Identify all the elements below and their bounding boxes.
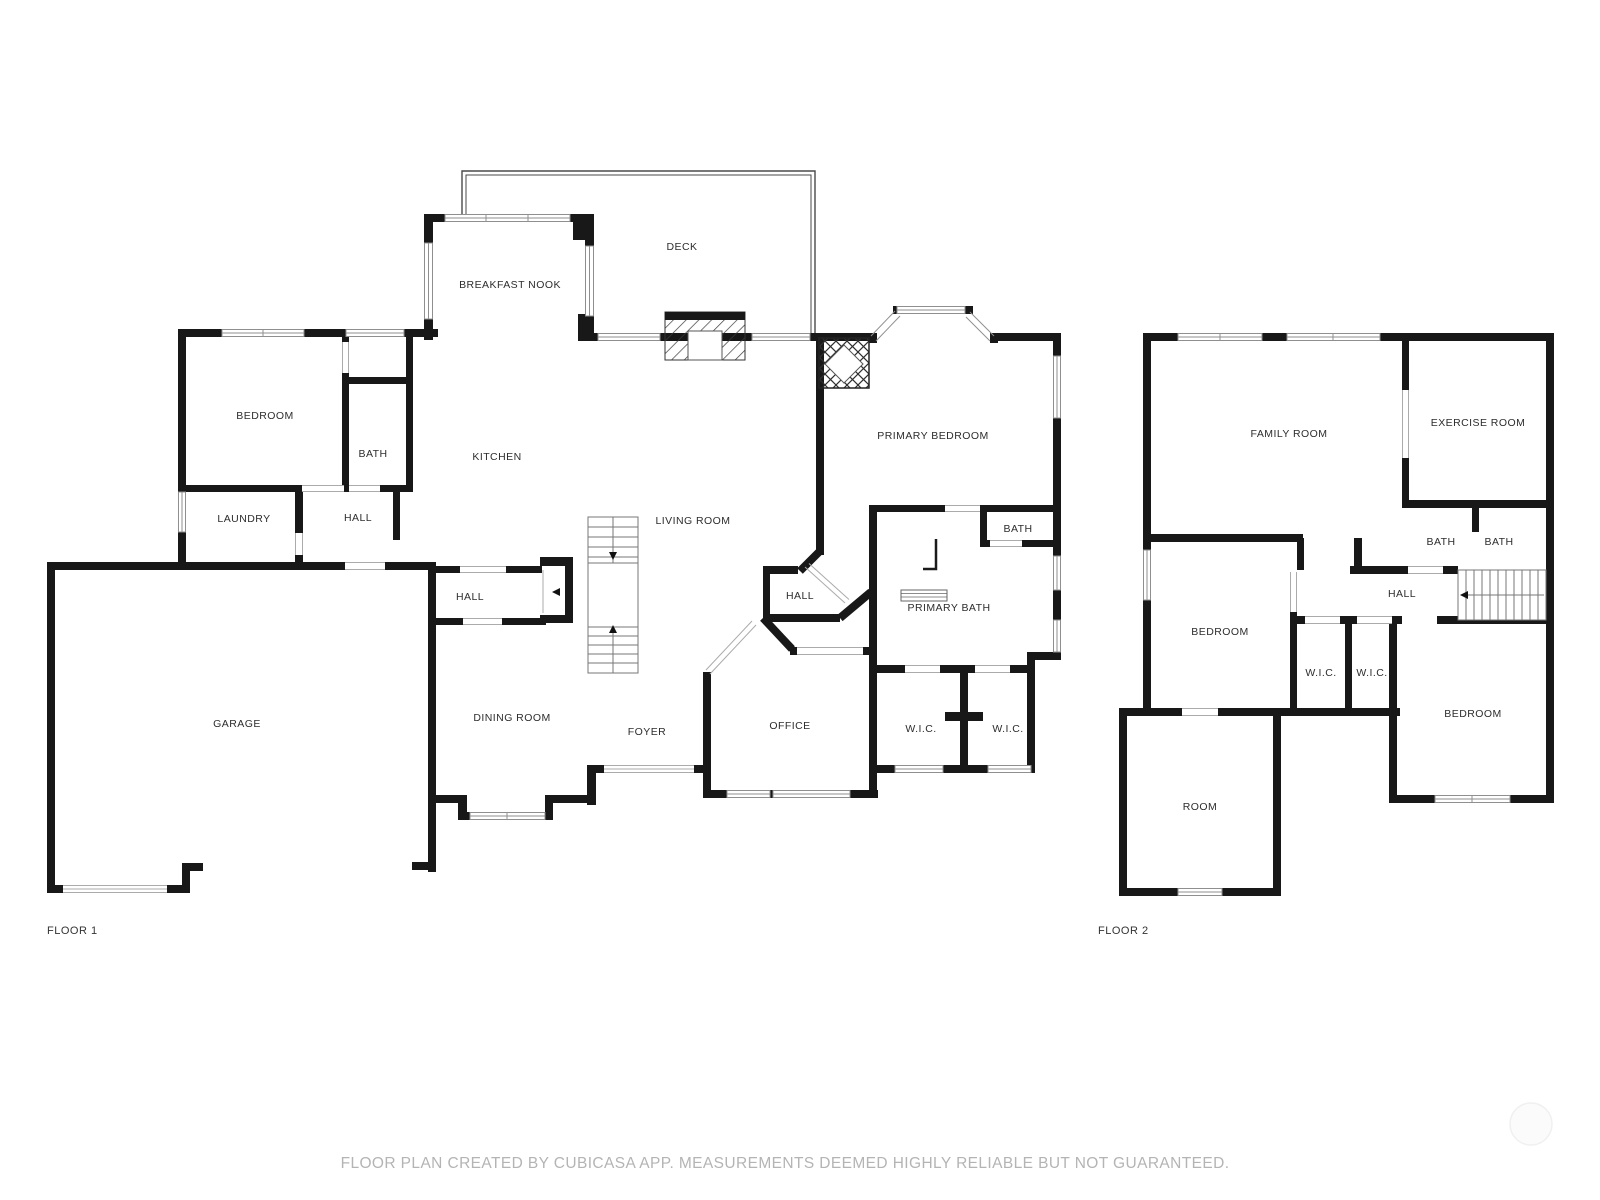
floor2-title: FLOOR 2 <box>1098 925 1149 937</box>
room-label-bath-small: BATH <box>1003 523 1032 535</box>
room-label-hall-upper: HALL <box>344 512 372 524</box>
room-label-primary-bedroom: PRIMARY BEDROOM <box>877 430 988 442</box>
room-label-living-room: LIVING ROOM <box>656 515 731 527</box>
room-label-office: OFFICE <box>769 720 810 732</box>
toilet-room-icon <box>923 539 936 569</box>
floor1-staircase <box>552 517 638 673</box>
floor-plan-page: DECK BREAKFAST NOOK BEDROOM BATH KITCHEN… <box>0 0 1600 1200</box>
room-label-bedroom-f2-right: BEDROOM <box>1444 708 1501 720</box>
room-label-hall-middle: HALL <box>786 590 814 602</box>
room-label-wic-left: W.I.C. <box>905 723 936 735</box>
floor1-walls <box>47 214 1061 893</box>
room-label-bath-f2-right: BATH <box>1484 536 1513 548</box>
room-label-exercise-room: EXERCISE ROOM <box>1431 417 1526 429</box>
room-label-kitchen: KITCHEN <box>472 451 521 463</box>
floor1-title: FLOOR 1 <box>47 925 98 937</box>
room-label-family-room: FAMILY ROOM <box>1251 428 1328 440</box>
floor2-staircase <box>1458 570 1546 620</box>
room-label-wic-f2-left: W.I.C. <box>1305 667 1336 679</box>
room-label-deck: DECK <box>667 241 698 253</box>
floor1-diagonal-walls <box>760 548 874 652</box>
room-label-hall-f2: HALL <box>1388 588 1416 600</box>
room-label-bedroom-f1: BEDROOM <box>236 410 293 422</box>
room-label-wic-right: W.I.C. <box>992 723 1023 735</box>
room-label-garage: GARAGE <box>213 718 261 730</box>
floor-plan-image: DECK BREAKFAST NOOK BEDROOM BATH KITCHEN… <box>0 0 1600 1200</box>
room-label-bedroom-f2-left: BEDROOM <box>1191 626 1248 638</box>
room-label-hall-lower: HALL <box>456 591 484 603</box>
shower-icon <box>901 590 947 601</box>
room-label-laundry: LAUNDRY <box>217 513 270 525</box>
fireplace-icon <box>665 312 745 360</box>
room-label-dining-room: DINING ROOM <box>473 712 550 724</box>
floor2-plan: FAMILY ROOM EXERCISE ROOM BATH BATH HALL… <box>1098 333 1554 937</box>
room-label-bath-f1: BATH <box>358 448 387 460</box>
corner-fireplace-icon <box>819 338 869 388</box>
room-label-foyer: FOYER <box>628 726 666 738</box>
room-label-room: ROOM <box>1183 801 1217 813</box>
footer-disclaimer: FLOOR PLAN CREATED BY CUBICASA APP. MEAS… <box>341 1155 1230 1172</box>
room-label-bath-f2-left: BATH <box>1426 536 1455 548</box>
room-label-breakfast-nook: BREAKFAST NOOK <box>459 279 561 291</box>
floor1-plan: DECK BREAKFAST NOOK BEDROOM BATH KITCHEN… <box>47 171 1061 937</box>
room-label-primary-bath: PRIMARY BATH <box>907 602 990 614</box>
deck-outline <box>462 171 815 333</box>
watermark-circle <box>1510 1103 1552 1145</box>
room-label-wic-f2-right: W.I.C. <box>1356 667 1387 679</box>
